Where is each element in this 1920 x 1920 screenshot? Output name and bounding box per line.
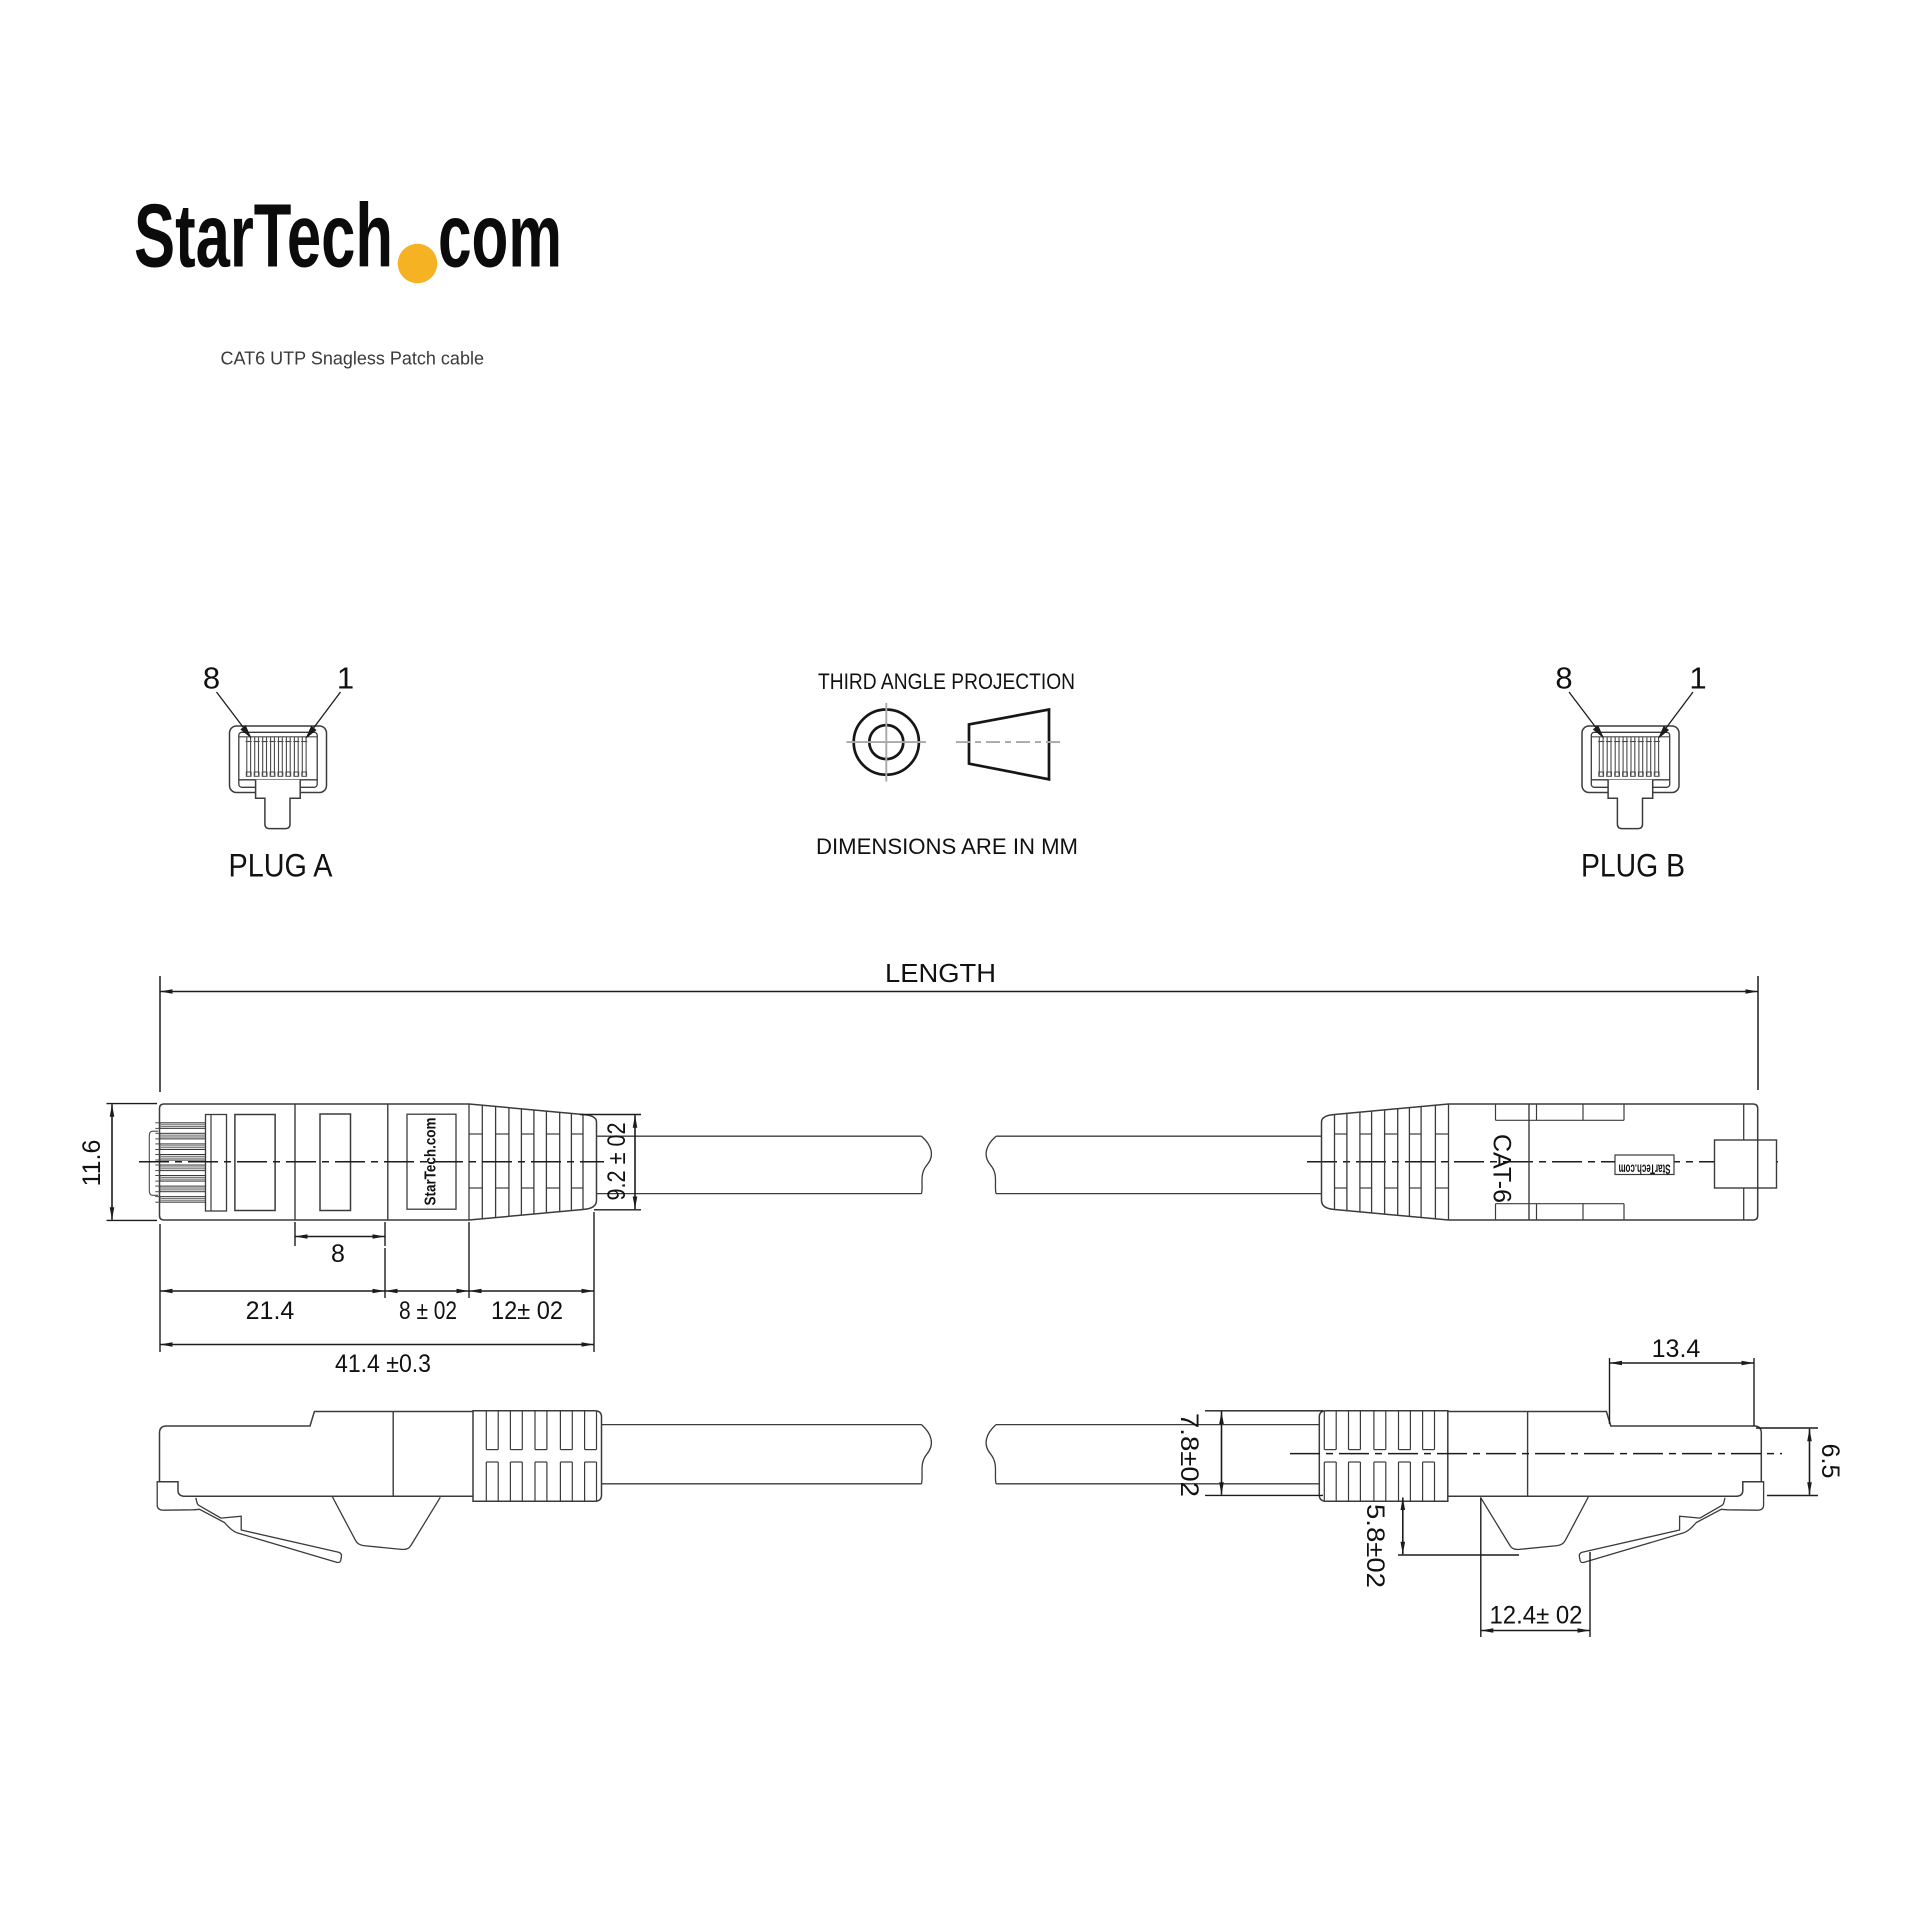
svg-text:CAT6 UTP Snagless Patch cable: CAT6 UTP Snagless Patch cable [221,349,484,369]
svg-text:21.4: 21.4 [246,1297,295,1325]
svg-text:com: com [438,187,562,287]
svg-text:12± 02: 12± 02 [491,1297,563,1325]
svg-text:5.8±02: 5.8±02 [1361,1504,1389,1588]
svg-text:41.4 ±0.3: 41.4 ±0.3 [335,1350,431,1378]
svg-text:StarTech.com: StarTech.com [1619,1162,1671,1177]
svg-text:StarTech: StarTech [134,187,393,287]
svg-text:8 ± 02: 8 ± 02 [399,1297,457,1325]
svg-text:8: 8 [203,661,220,696]
svg-text:6.5: 6.5 [1816,1444,1844,1479]
svg-text:LENGTH: LENGTH [885,958,996,988]
svg-text:12.4± 02: 12.4± 02 [1490,1602,1583,1630]
svg-text:CAT-6: CAT-6 [1488,1134,1516,1203]
svg-text:1: 1 [1689,661,1706,696]
svg-text:11.6: 11.6 [78,1140,106,1187]
svg-text:8: 8 [331,1240,345,1268]
svg-text:DIMENSIONS ARE IN MM: DIMENSIONS ARE IN MM [816,834,1078,859]
svg-text:PLUG A: PLUG A [229,848,333,884]
svg-text:9.2 ± 02: 9.2 ± 02 [603,1123,631,1201]
svg-text:13.4: 13.4 [1652,1335,1701,1363]
svg-text:8: 8 [1555,661,1572,696]
svg-text:1: 1 [337,661,354,696]
svg-text:7.8±02: 7.8±02 [1175,1413,1203,1497]
svg-text:THIRD ANGLE PROJECTION: THIRD ANGLE PROJECTION [818,669,1075,694]
svg-text:PLUG B: PLUG B [1581,848,1685,884]
